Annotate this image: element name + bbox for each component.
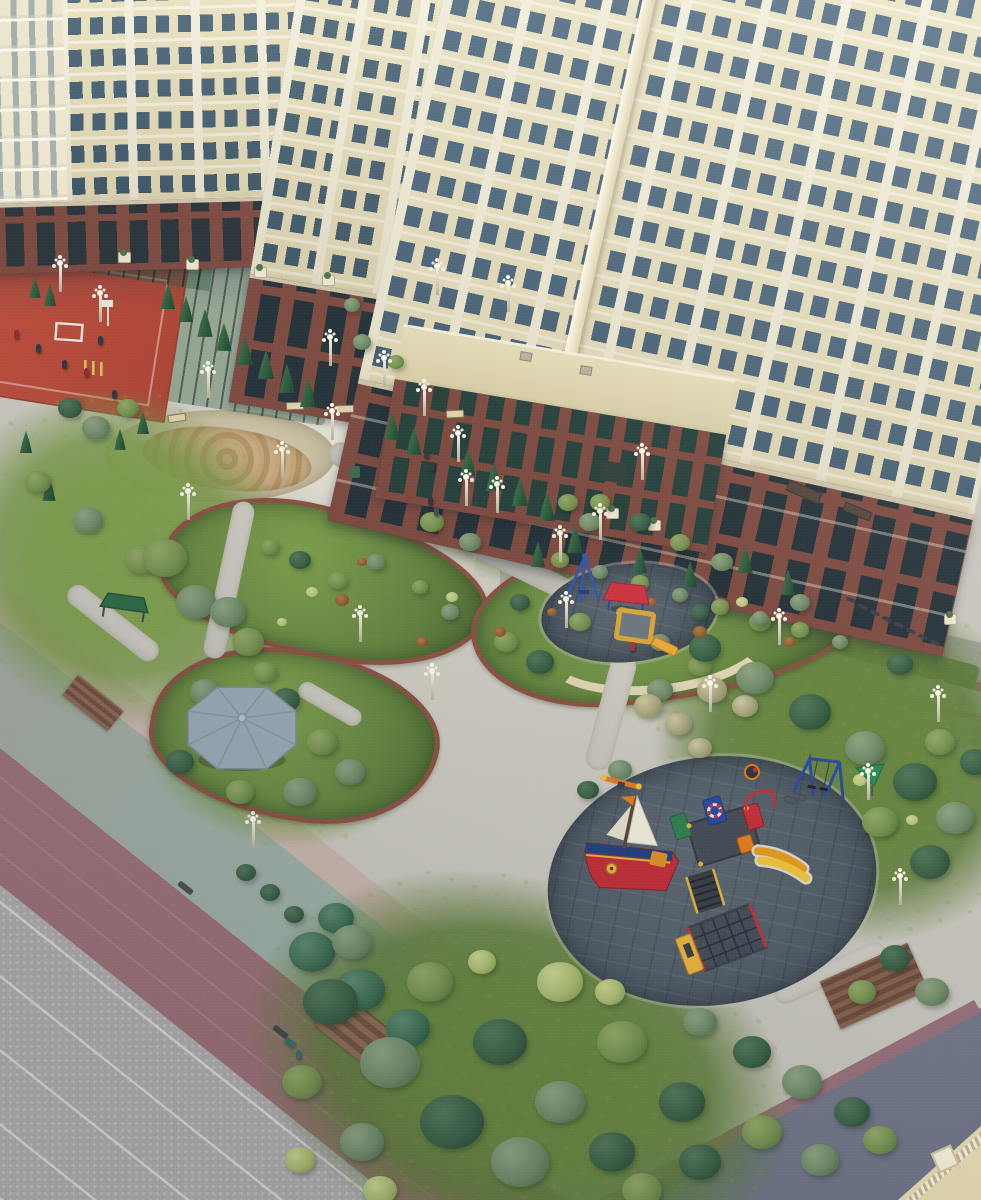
street-lamp (937, 696, 940, 722)
street-lamp (457, 436, 460, 462)
street-lamp (496, 487, 499, 513)
street-lamp (507, 286, 510, 312)
street-lamp (383, 361, 386, 387)
person (430, 462, 435, 471)
annex-entrance (599, 460, 628, 484)
pirate-ship (578, 788, 690, 902)
tripod-swing (566, 556, 598, 602)
street-lamp (899, 879, 902, 905)
pirate-playground-equipment (578, 755, 884, 977)
person (630, 642, 635, 651)
person (62, 360, 67, 369)
street-lamp (187, 494, 190, 520)
sandbox (616, 610, 654, 642)
person (424, 450, 429, 459)
entrance-canopy (843, 502, 872, 521)
street-lamp (329, 340, 332, 366)
street-lamp (778, 619, 781, 645)
street-lamp (252, 822, 255, 848)
park-bin (350, 466, 360, 478)
street-lamp (59, 266, 62, 292)
street-lamp (431, 674, 434, 700)
stairs (686, 869, 724, 914)
person (296, 1050, 301, 1059)
person (84, 368, 89, 377)
cube-climber (673, 904, 766, 976)
person (14, 330, 19, 339)
person (98, 336, 103, 345)
street-lamp (709, 686, 712, 712)
double-slide (758, 840, 806, 889)
street-lamp (423, 390, 426, 416)
toddler-playground-equipment (566, 553, 678, 656)
street-lamp (207, 372, 210, 398)
entrance-canopy (786, 480, 822, 504)
garden-arbor (99, 592, 150, 622)
street-lamp (565, 602, 568, 628)
person (112, 390, 117, 399)
street-lamp (465, 480, 468, 506)
street-lamp (559, 536, 562, 562)
street-lamp (281, 452, 284, 478)
person (428, 497, 433, 506)
fallen-bike (783, 792, 806, 804)
details-overlay (0, 0, 981, 1200)
street-lamp (331, 414, 334, 440)
seesaw (599, 774, 642, 793)
street-lamp (867, 774, 870, 800)
street-lamp (359, 616, 362, 642)
person (434, 507, 439, 516)
play-lounger (651, 637, 678, 656)
monkey-bars (746, 791, 774, 800)
street-lamp (99, 296, 102, 322)
person (36, 344, 41, 353)
street-lamp (436, 269, 439, 295)
street-lamp (641, 454, 644, 480)
green-canopy (856, 764, 884, 786)
spinner (745, 765, 759, 779)
gazebo (188, 687, 296, 771)
aerial-courtyard-photo: Aerial view of a residential complex cou… (0, 0, 981, 1200)
street-lamp (599, 514, 602, 540)
